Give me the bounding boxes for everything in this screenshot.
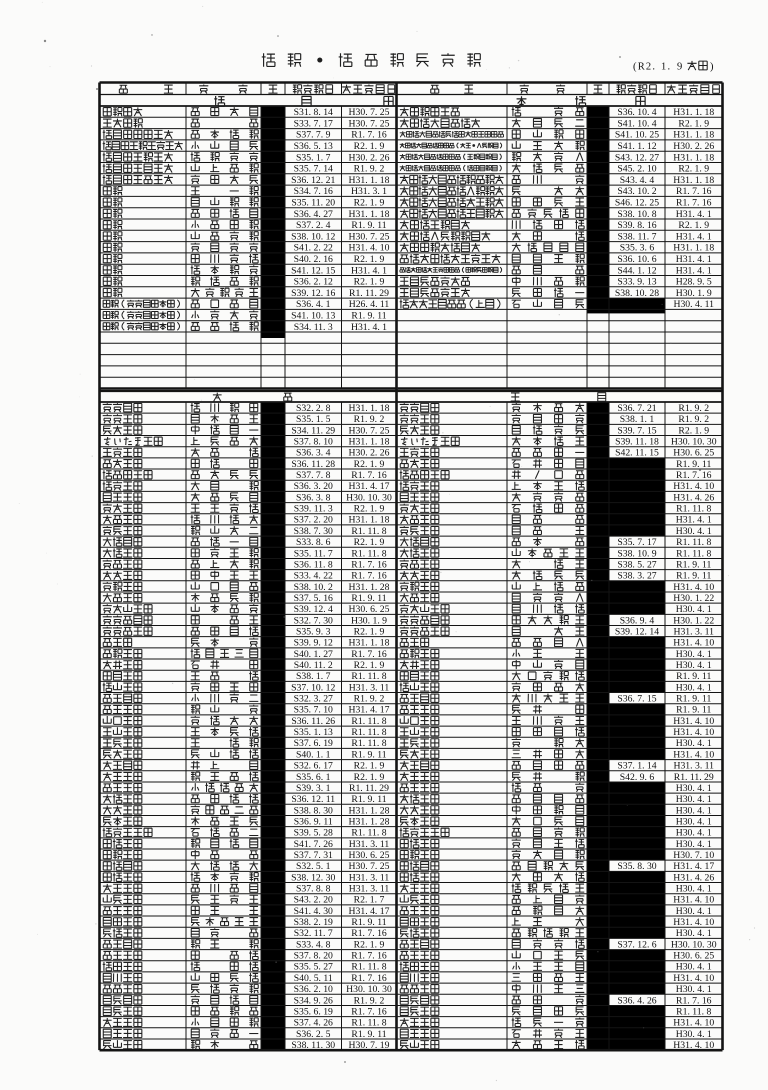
svg-text:S46. 12. 25: S46. 12. 25 xyxy=(615,197,659,208)
svg-text:R1. 11. 8: R1. 11. 8 xyxy=(351,526,386,537)
svg-text:S40. 1. 27: S40. 1. 27 xyxy=(294,649,333,660)
svg-text:R1. 7. 16: R1. 7. 16 xyxy=(351,928,387,939)
svg-text:R2. 1. 9: R2. 1. 9 xyxy=(354,504,385,515)
svg-text:S36. 9. 4: S36. 9. 4 xyxy=(620,615,655,626)
svg-text:R1. 9. 11: R1. 9. 11 xyxy=(676,671,711,682)
svg-text:S41. 10. 13: S41. 10. 13 xyxy=(291,310,335,321)
svg-text:H30. 7. 25: H30. 7. 25 xyxy=(349,425,390,436)
svg-text:R1. 7. 16: R1. 7. 16 xyxy=(351,130,387,141)
svg-text:R1. 7. 16: R1. 7. 16 xyxy=(351,1006,387,1017)
svg-text:S32. 7. 30: S32. 7. 30 xyxy=(294,615,333,626)
svg-text:H31. 4. 1: H31. 4. 1 xyxy=(351,322,387,333)
svg-text:H31. 4. 10: H31. 4. 10 xyxy=(673,716,714,727)
svg-text:R1. 9. 11: R1. 9. 11 xyxy=(351,749,386,760)
svg-text:R1. 9. 2: R1. 9. 2 xyxy=(354,414,385,425)
svg-text:R1. 7. 16: R1. 7. 16 xyxy=(351,973,387,984)
svg-text:S39. 5. 28: S39. 5. 28 xyxy=(294,828,333,839)
svg-text:R1. 11. 29: R1. 11. 29 xyxy=(349,783,389,794)
svg-text:S36. 2. 5: S36. 2. 5 xyxy=(296,1029,331,1040)
svg-text:H31. 4. 10: H31. 4. 10 xyxy=(673,481,714,492)
svg-text:S38. 10. 28: S38. 10. 28 xyxy=(615,288,659,299)
svg-text:S37. 7. 8: S37. 7. 8 xyxy=(296,470,331,481)
svg-text:R2. 1. 9: R2. 1. 9 xyxy=(678,220,709,231)
svg-text:H31. 1. 18: H31. 1. 18 xyxy=(673,175,714,186)
svg-text:R2. 1. 9: R2. 1. 9 xyxy=(354,197,385,208)
svg-text:R2. 1. 9: R2. 1. 9 xyxy=(354,254,385,265)
svg-text:H31. 4. 10: H31. 4. 10 xyxy=(673,582,714,593)
svg-text:R1. 11. 8: R1. 11. 8 xyxy=(351,828,386,839)
svg-text:H30. 6. 25: H30. 6. 25 xyxy=(349,604,390,615)
svg-text:H31. 1. 18: H31. 1. 18 xyxy=(349,515,390,526)
svg-text:R2. 1. 9: R2. 1. 9 xyxy=(354,459,385,470)
svg-text:H30. 4. 1: H30. 4. 1 xyxy=(676,660,712,671)
svg-text:R1. 9. 2: R1. 9. 2 xyxy=(354,164,385,175)
svg-text:H31. 4. 17: H31. 4. 17 xyxy=(673,861,714,872)
svg-text:R2. 1. 9: R2. 1. 9 xyxy=(678,164,709,175)
svg-text:S32. 3. 27: S32. 3. 27 xyxy=(294,694,333,705)
svg-text:S33. 8. 6: S33. 8. 6 xyxy=(296,537,331,548)
svg-text:H31. 1. 18: H31. 1. 18 xyxy=(349,437,390,448)
svg-text:R1. 9. 11: R1. 9. 11 xyxy=(676,559,711,570)
svg-text:S35. 11. 20: S35. 11. 20 xyxy=(291,197,335,208)
svg-text:S36. 11. 8: S36. 11. 8 xyxy=(294,559,333,570)
svg-text:H31. 4. 17: H31. 4. 17 xyxy=(349,481,390,492)
svg-text:H30. 2. 26: H30. 2. 26 xyxy=(673,141,714,152)
svg-text:H30. 6. 25: H30. 6. 25 xyxy=(673,448,714,459)
svg-text:R1. 9. 11: R1. 9. 11 xyxy=(351,593,386,604)
svg-text:H30. 4. 1: H30. 4. 1 xyxy=(676,805,712,816)
svg-text:S37. 1. 14: S37. 1. 14 xyxy=(617,761,656,772)
svg-text:R1. 9. 2: R1. 9. 2 xyxy=(678,414,709,425)
svg-text:H30. 4. 1: H30. 4. 1 xyxy=(676,906,712,917)
svg-text:H26. 4. 11: H26. 4. 11 xyxy=(349,299,390,310)
svg-text:H30. 4. 1: H30. 4. 1 xyxy=(676,738,712,749)
svg-text:S38. 1. 1: S38. 1. 1 xyxy=(620,414,655,425)
svg-text:H30. 4. 11: H30. 4. 11 xyxy=(673,299,714,310)
svg-text:S36. 7. 15: S36. 7. 15 xyxy=(617,694,656,705)
svg-text:S38. 2. 19: S38. 2. 19 xyxy=(294,917,333,928)
svg-text:H30. 7. 25: H30. 7. 25 xyxy=(349,861,390,872)
svg-text:H30. 6. 25: H30. 6. 25 xyxy=(349,850,390,861)
svg-text:H30. 4. 1: H30. 4. 1 xyxy=(676,839,712,850)
svg-text:H30. 10. 30: H30. 10. 30 xyxy=(346,492,392,503)
svg-text:H30. 1. 22: H30. 1. 22 xyxy=(673,593,714,604)
svg-text:S37. 4. 26: S37. 4. 26 xyxy=(294,1018,333,1029)
svg-text:H31. 1. 18: H31. 1. 18 xyxy=(349,209,390,220)
svg-text:S39. 8. 16: S39. 8. 16 xyxy=(617,220,656,231)
svg-text:H31. 1. 28: H31. 1. 28 xyxy=(349,805,390,816)
svg-text:S38. 10. 9: S38. 10. 9 xyxy=(617,548,656,559)
svg-text:S33. 4. 8: S33. 4. 8 xyxy=(296,939,331,950)
svg-text:H30. 7. 25: H30. 7. 25 xyxy=(349,118,390,129)
svg-text:S35. 11. 7: S35. 11. 7 xyxy=(294,548,333,559)
svg-text:H31. 4. 10: H31. 4. 10 xyxy=(673,1018,714,1029)
svg-text:S37. 2. 4: S37. 2. 4 xyxy=(296,220,331,231)
svg-text:(R2.: (R2. xyxy=(633,61,656,72)
svg-text:S40. 2. 16: S40. 2. 16 xyxy=(294,254,333,265)
svg-text:H31. 1. 18: H31. 1. 18 xyxy=(349,403,390,414)
svg-text:R1. 11. 8: R1. 11. 8 xyxy=(351,738,386,749)
svg-text:H31. 3. 11: H31. 3. 11 xyxy=(673,761,714,772)
svg-text:S35. 1. 5: S35. 1. 5 xyxy=(296,414,331,425)
svg-text:R1. 9. 11: R1. 9. 11 xyxy=(351,1029,386,1040)
svg-text:H31. 4. 1: H31. 4. 1 xyxy=(676,515,712,526)
svg-text:R1. 11. 8: R1. 11. 8 xyxy=(351,548,386,559)
svg-text:H31. 4. 26: H31. 4. 26 xyxy=(673,872,714,883)
svg-text:H31. 1. 18: H31. 1. 18 xyxy=(673,130,714,141)
svg-text:H31. 4. 10: H31. 4. 10 xyxy=(673,749,714,760)
svg-text:R2. 1. 9: R2. 1. 9 xyxy=(354,660,385,671)
svg-text:S33. 7. 17: S33. 7. 17 xyxy=(294,118,333,129)
svg-text:H31. 3. 11: H31. 3. 11 xyxy=(349,884,390,895)
svg-text:S35. 8. 30: S35. 8. 30 xyxy=(617,861,656,872)
svg-text:H28. 9. 5: H28. 9. 5 xyxy=(676,277,712,288)
svg-text:S36. 4. 1: S36. 4. 1 xyxy=(296,299,331,310)
svg-text:R1. 11. 8: R1. 11. 8 xyxy=(676,504,711,515)
svg-text:S36. 4. 26: S36. 4. 26 xyxy=(617,995,656,1006)
svg-text:S33. 9. 13: S33. 9. 13 xyxy=(617,277,656,288)
svg-text:S38. 10. 2: S38. 10. 2 xyxy=(294,582,333,593)
svg-text:S32. 6. 17: S32. 6. 17 xyxy=(294,761,333,772)
svg-text:S35. 1. 13: S35. 1. 13 xyxy=(294,727,333,738)
svg-text:H30. 10. 30: H30. 10. 30 xyxy=(671,437,717,448)
svg-text:R1. 9. 11: R1. 9. 11 xyxy=(351,917,386,928)
svg-text:R2. 1. 9: R2. 1. 9 xyxy=(354,537,385,548)
svg-text:S37. 2. 20: S37. 2. 20 xyxy=(294,515,333,526)
svg-text:R1. 9. 11: R1. 9. 11 xyxy=(676,694,711,705)
svg-text:H31. 1. 18: H31. 1. 18 xyxy=(673,107,714,118)
svg-text:H30. 7. 25: H30. 7. 25 xyxy=(349,107,390,118)
svg-text:R1. 9. 2: R1. 9. 2 xyxy=(678,403,709,414)
svg-text:R1. 7. 16: R1. 7. 16 xyxy=(351,649,387,660)
svg-text:S42. 9. 6: S42. 9. 6 xyxy=(620,772,655,783)
svg-text:H30. 2. 26: H30. 2. 26 xyxy=(349,448,390,459)
svg-text:R1. 7. 16: R1. 7. 16 xyxy=(676,186,712,197)
svg-text:H31. 3. 1: H31. 3. 1 xyxy=(351,186,387,197)
svg-text:S43. 10. 2: S43. 10. 2 xyxy=(617,186,656,197)
svg-text:S44. 1. 12: S44. 1. 12 xyxy=(617,265,656,276)
svg-text:S35. 7. 10: S35. 7. 10 xyxy=(294,705,333,716)
svg-text:H30. 4. 1: H30. 4. 1 xyxy=(676,928,712,939)
svg-text:R2. 1. 9: R2. 1. 9 xyxy=(354,772,385,783)
svg-text:S36. 3. 8: S36. 3. 8 xyxy=(296,492,331,503)
svg-text:S38. 5. 27: S38. 5. 27 xyxy=(617,559,656,570)
svg-text:H30. 4. 1: H30. 4. 1 xyxy=(676,828,712,839)
svg-text:S39. 12. 4: S39. 12. 4 xyxy=(294,604,333,615)
svg-text:H31. 1. 28: H31. 1. 28 xyxy=(349,582,390,593)
svg-text:S36. 5. 13: S36. 5. 13 xyxy=(294,141,333,152)
svg-text:R1. 7. 16: R1. 7. 16 xyxy=(351,559,387,570)
svg-text:H30. 4. 1: H30. 4. 1 xyxy=(676,816,712,827)
svg-text:R1. 11. 8: R1. 11. 8 xyxy=(676,537,711,548)
svg-text:S41. 1. 12: S41. 1. 12 xyxy=(617,141,656,152)
svg-text:S35. 9. 3: S35. 9. 3 xyxy=(296,626,331,637)
svg-text:S37. 8. 10: S37. 8. 10 xyxy=(294,437,333,448)
svg-text:S43. 4. 4: S43. 4. 4 xyxy=(620,175,655,186)
svg-text:H30. 4. 1: H30. 4. 1 xyxy=(676,604,712,615)
svg-text:H30. 4. 1: H30. 4. 1 xyxy=(676,794,712,805)
svg-text:S37. 8. 8: S37. 8. 8 xyxy=(296,884,331,895)
svg-text:H31. 4. 10: H31. 4. 10 xyxy=(673,917,714,928)
svg-text:R1. 11. 8: R1. 11. 8 xyxy=(351,1018,386,1029)
svg-text:S41. 7. 26: S41. 7. 26 xyxy=(294,839,333,850)
svg-text:S35. 7. 17: S35. 7. 17 xyxy=(617,537,656,548)
svg-text:S36. 10. 6: S36. 10. 6 xyxy=(617,254,656,265)
svg-text:S34. 9. 26: S34. 9. 26 xyxy=(294,995,333,1006)
svg-text:S35. 6. 1: S35. 6. 1 xyxy=(296,772,331,783)
svg-text:R2. 1. 7: R2. 1. 7 xyxy=(354,895,385,906)
svg-text:S40. 1. 1: S40. 1. 1 xyxy=(296,749,331,760)
svg-text:H30. 4. 1: H30. 4. 1 xyxy=(676,1029,712,1040)
svg-text:1.: 1. xyxy=(661,61,671,72)
svg-text:R2. 1. 9: R2. 1. 9 xyxy=(354,141,385,152)
svg-text:H30. 7. 10: H30. 7. 10 xyxy=(673,850,714,861)
svg-text:S41. 10. 4: S41. 10. 4 xyxy=(617,118,656,129)
svg-text:R1. 11. 8: R1. 11. 8 xyxy=(351,962,386,973)
svg-text:H30. 4. 1: H30. 4. 1 xyxy=(676,649,712,660)
svg-text:S33. 4. 22: S33. 4. 22 xyxy=(294,571,333,582)
svg-text:R1. 11. 29: R1. 11. 29 xyxy=(349,288,389,299)
svg-text:H30. 4. 1: H30. 4. 1 xyxy=(676,984,712,995)
svg-text:R1. 9. 11: R1. 9. 11 xyxy=(351,220,386,231)
svg-text:R1. 7. 16: R1. 7. 16 xyxy=(351,571,387,582)
svg-text:S32. 5. 1: S32. 5. 1 xyxy=(296,861,331,872)
svg-text:S38. 11. 7: S38. 11. 7 xyxy=(618,231,657,242)
svg-text:S34. 11. 3: S34. 11. 3 xyxy=(294,322,333,333)
svg-text:S39. 12. 14: S39. 12. 14 xyxy=(615,626,659,637)
svg-text:R1. 11. 8: R1. 11. 8 xyxy=(351,716,386,727)
svg-text:H30. 4. 1: H30. 4. 1 xyxy=(676,526,712,537)
svg-text:S36. 3. 4: S36. 3. 4 xyxy=(296,448,331,459)
svg-text:H31. 4. 10: H31. 4. 10 xyxy=(349,243,390,254)
svg-text:H31. 1. 18: H31. 1. 18 xyxy=(349,638,390,649)
svg-text:H30. 1. 22: H30. 1. 22 xyxy=(673,615,714,626)
svg-text:H31. 4. 17: H31. 4. 17 xyxy=(349,705,390,716)
svg-text:R2. 1. 9: R2. 1. 9 xyxy=(678,425,709,436)
svg-text:S38. 1. 7: S38. 1. 7 xyxy=(296,671,331,682)
svg-text:R1. 7. 16: R1. 7. 16 xyxy=(351,470,387,481)
svg-text:S34. 11. 29: S34. 11. 29 xyxy=(291,425,335,436)
svg-text:S39. 9. 12: S39. 9. 12 xyxy=(294,638,333,649)
svg-text:H31. 3. 11: H31. 3. 11 xyxy=(673,626,714,637)
svg-text:H31. 4. 1: H31. 4. 1 xyxy=(676,209,712,220)
svg-text:H31. 4. 10: H31. 4. 10 xyxy=(673,895,714,906)
svg-text:H31. 4. 1: H31. 4. 1 xyxy=(676,254,712,265)
svg-text:H31. 4. 1: H31. 4. 1 xyxy=(351,265,387,276)
svg-text:S38. 12. 30: S38. 12. 30 xyxy=(291,872,335,883)
svg-text:S36. 10. 4: S36. 10. 4 xyxy=(617,107,656,118)
svg-text:H31. 3. 11: H31. 3. 11 xyxy=(349,872,390,883)
svg-text:H31. 1. 28: H31. 1. 28 xyxy=(349,816,390,827)
svg-text:S41. 12. 15: S41. 12. 15 xyxy=(291,265,335,276)
svg-text:S38. 10. 12: S38. 10. 12 xyxy=(291,231,335,242)
svg-text:S36. 12. 11: S36. 12. 11 xyxy=(291,794,335,805)
svg-text:H30. 10. 30: H30. 10. 30 xyxy=(671,939,717,950)
svg-text:S31. 8. 14: S31. 8. 14 xyxy=(294,107,333,118)
svg-text:S39. 7. 15: S39. 7. 15 xyxy=(617,425,656,436)
svg-text:R1. 11. 8: R1. 11. 8 xyxy=(351,727,386,738)
svg-text:R1. 9. 11: R1. 9. 11 xyxy=(676,459,711,470)
svg-text:H30. 6. 25: H30. 6. 25 xyxy=(673,951,714,962)
svg-text:S39. 11. 3: S39. 11. 3 xyxy=(294,504,333,515)
svg-text:H31. 1. 18: H31. 1. 18 xyxy=(673,243,714,254)
svg-text:S37. 8. 20: S37. 8. 20 xyxy=(294,951,333,962)
svg-text:S41. 4. 30: S41. 4. 30 xyxy=(294,906,333,917)
svg-text:9: 9 xyxy=(677,61,683,72)
svg-text:S37. 10. 12: S37. 10. 12 xyxy=(291,682,335,693)
svg-text:R1. 9. 2: R1. 9. 2 xyxy=(354,694,385,705)
svg-text:S35. 5. 27: S35. 5. 27 xyxy=(294,962,333,973)
svg-text:H31. 1. 18: H31. 1. 18 xyxy=(349,175,390,186)
svg-text:S36. 2. 12: S36. 2. 12 xyxy=(294,277,333,288)
svg-text:S34. 7. 16: S34. 7. 16 xyxy=(294,186,333,197)
svg-text:H30. 7. 25: H30. 7. 25 xyxy=(349,231,390,242)
svg-text:S43. 12. 27: S43. 12. 27 xyxy=(615,152,659,163)
svg-text:H31. 4. 1: H31. 4. 1 xyxy=(676,265,712,276)
svg-text:H31. 4. 1: H31. 4. 1 xyxy=(676,231,712,242)
svg-text:S41. 10. 25: S41. 10. 25 xyxy=(615,130,659,141)
svg-text:H30. 10. 30: H30. 10. 30 xyxy=(346,984,392,995)
svg-text:R1. 11. 8: R1. 11. 8 xyxy=(676,548,711,559)
svg-text:R2. 1. 9: R2. 1. 9 xyxy=(354,761,385,772)
svg-text:S38. 3. 27: S38. 3. 27 xyxy=(617,571,656,582)
svg-text:R1. 9. 2: R1. 9. 2 xyxy=(354,995,385,1006)
svg-text:S35. 6. 19: S35. 6. 19 xyxy=(294,1006,333,1017)
svg-text:S37. 12. 6: S37. 12. 6 xyxy=(617,939,656,950)
svg-text:S35. 7. 14: S35. 7. 14 xyxy=(294,164,333,175)
svg-text:H31. 4. 10: H31. 4. 10 xyxy=(673,973,714,984)
svg-text:R2. 1. 9: R2. 1. 9 xyxy=(678,118,709,129)
svg-text:S37. 7. 9: S37. 7. 9 xyxy=(296,130,331,141)
svg-text:H30. 4. 1: H30. 4. 1 xyxy=(676,783,712,794)
svg-text:R1. 9. 11: R1. 9. 11 xyxy=(676,571,711,582)
svg-text:S36. 12. 21: S36. 12. 21 xyxy=(291,175,335,186)
svg-text:H31. 1. 18: H31. 1. 18 xyxy=(673,152,714,163)
svg-text:R1. 7. 16: R1. 7. 16 xyxy=(351,951,387,962)
svg-text:S45. 2. 10: S45. 2. 10 xyxy=(617,164,656,175)
svg-text:S39. 12. 16: S39. 12. 16 xyxy=(291,288,335,299)
svg-text:S38. 8. 30: S38. 8. 30 xyxy=(294,805,333,816)
svg-text:R1. 7. 16: R1. 7. 16 xyxy=(676,995,712,1006)
svg-text:S36. 11. 26: S36. 11. 26 xyxy=(291,716,335,727)
svg-text:H31. 4. 10: H31. 4. 10 xyxy=(673,727,714,738)
svg-text:): ) xyxy=(710,61,714,72)
svg-text:S40. 11. 2: S40. 11. 2 xyxy=(294,660,333,671)
svg-text:H30. 4. 1: H30. 4. 1 xyxy=(676,884,712,895)
svg-text:R2. 1. 9: R2. 1. 9 xyxy=(354,939,385,950)
svg-text:H31. 4. 17: H31. 4. 17 xyxy=(349,906,390,917)
svg-text:H30. 1. 9: H30. 1. 9 xyxy=(676,288,712,299)
svg-text:H30. 2. 26: H30. 2. 26 xyxy=(349,152,390,163)
svg-text:H30. 4. 1: H30. 4. 1 xyxy=(676,962,712,973)
svg-text:S41. 2. 22: S41. 2. 22 xyxy=(294,243,333,254)
svg-text:R1. 7. 16: R1. 7. 16 xyxy=(676,470,712,481)
svg-text:S36. 3. 20: S36. 3. 20 xyxy=(294,481,333,492)
svg-text:S36. 11. 28: S36. 11. 28 xyxy=(291,459,335,470)
svg-text:S37. 6. 19: S37. 6. 19 xyxy=(294,738,333,749)
svg-text:S39. 11. 18: S39. 11. 18 xyxy=(615,437,659,448)
svg-text:H30. 1. 9: H30. 1. 9 xyxy=(351,615,387,626)
svg-text:H31. 3. 11: H31. 3. 11 xyxy=(349,839,390,850)
svg-text:S40. 5. 11: S40. 5. 11 xyxy=(294,973,333,984)
svg-text:R1. 11. 8: R1. 11. 8 xyxy=(351,671,386,682)
svg-text:R1. 7. 16: R1. 7. 16 xyxy=(676,197,712,208)
svg-text:S32. 2. 8: S32. 2. 8 xyxy=(296,403,331,414)
svg-text:R2. 1. 9: R2. 1. 9 xyxy=(354,277,385,288)
svg-text:S36. 2. 10: S36. 2. 10 xyxy=(294,984,333,995)
svg-text:S39. 3. 1: S39. 3. 1 xyxy=(296,783,331,794)
svg-text:R1. 11. 29: R1. 11. 29 xyxy=(674,772,714,783)
svg-text:S38. 7. 30: S38. 7. 30 xyxy=(294,526,333,537)
svg-text:R2. 1. 9: R2. 1. 9 xyxy=(354,626,385,637)
svg-text:S43. 2. 20: S43. 2. 20 xyxy=(294,895,333,906)
svg-text:S35. 1. 7: S35. 1. 7 xyxy=(296,152,331,163)
svg-text:R1. 9. 11: R1. 9. 11 xyxy=(676,705,711,716)
svg-text:H30. 4. 1: H30. 4. 1 xyxy=(676,682,712,693)
svg-text:S42. 11. 15: S42. 11. 15 xyxy=(615,448,659,459)
svg-text:S37. 7. 31: S37. 7. 31 xyxy=(294,850,333,861)
svg-text:H31. 3. 11: H31. 3. 11 xyxy=(349,682,390,693)
svg-text:H31. 4. 26: H31. 4. 26 xyxy=(673,492,714,503)
svg-text:S36. 7. 21: S36. 7. 21 xyxy=(617,403,656,414)
svg-text:S36. 9. 11: S36. 9. 11 xyxy=(294,816,333,827)
svg-text:S35. 3. 6: S35. 3. 6 xyxy=(620,243,655,254)
svg-text:R1. 9. 11: R1. 9. 11 xyxy=(351,310,386,321)
svg-text:S32. 11. 7: S32. 11. 7 xyxy=(294,928,333,939)
svg-text:S37. 5. 16: S37. 5. 16 xyxy=(294,593,333,604)
svg-text:H31. 4. 10: H31. 4. 10 xyxy=(673,638,714,649)
svg-text:S38. 10. 8: S38. 10. 8 xyxy=(617,209,656,220)
svg-text:R1. 11. 8: R1. 11. 8 xyxy=(676,1006,711,1017)
svg-text:S36. 4. 27: S36. 4. 27 xyxy=(294,209,333,220)
svg-text:R1. 9. 11: R1. 9. 11 xyxy=(351,794,386,805)
